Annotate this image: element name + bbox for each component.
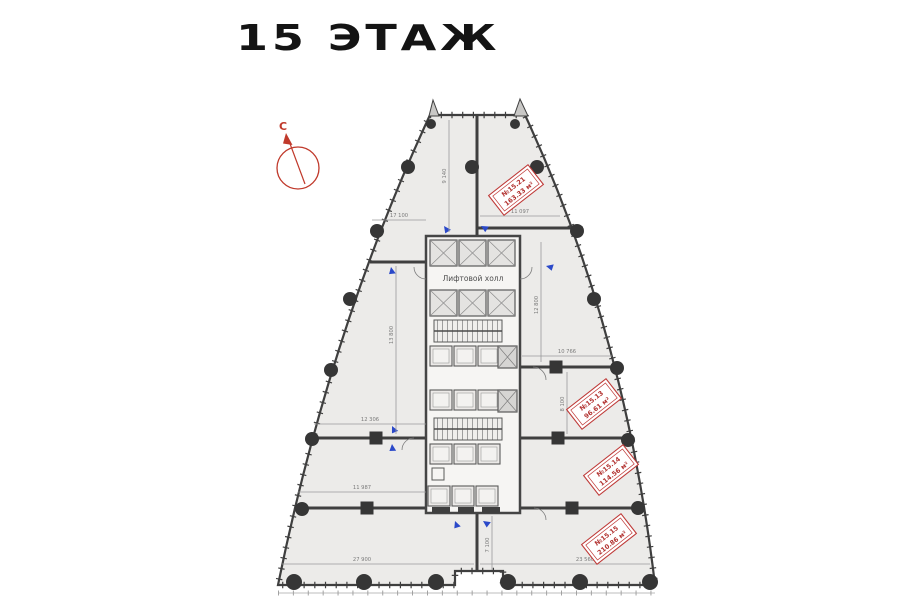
dim-label: 27 900: [353, 557, 371, 563]
dim-label: 8 100: [560, 397, 566, 412]
floor-plan-svg: Лифтовой холл: [0, 0, 900, 604]
dim-label: 9 140: [442, 169, 448, 184]
north-label: С: [279, 120, 287, 133]
dim-label: 7 100: [485, 538, 491, 553]
dim-label: 11 987: [353, 485, 371, 491]
building-core: Лифтовой холл: [426, 236, 520, 513]
dim-label: 12 800: [534, 296, 540, 314]
roof-fin-right: [514, 99, 528, 116]
lobby-label: Лифтовой холл: [443, 274, 504, 283]
staircase-upper: [434, 320, 502, 342]
dim-label: 17 100: [390, 213, 408, 219]
dim-label: 12 306: [361, 417, 379, 423]
floor-plan-page: 15 ЭТАЖ: [0, 0, 900, 604]
staircase-lower: [434, 418, 502, 440]
roof-fin-left: [429, 100, 439, 116]
north-compass-icon: С: [277, 120, 319, 189]
dim-label: 10 766: [558, 349, 576, 355]
dim-label: 13 800: [389, 326, 395, 344]
dim-label: 11 097: [511, 209, 529, 215]
